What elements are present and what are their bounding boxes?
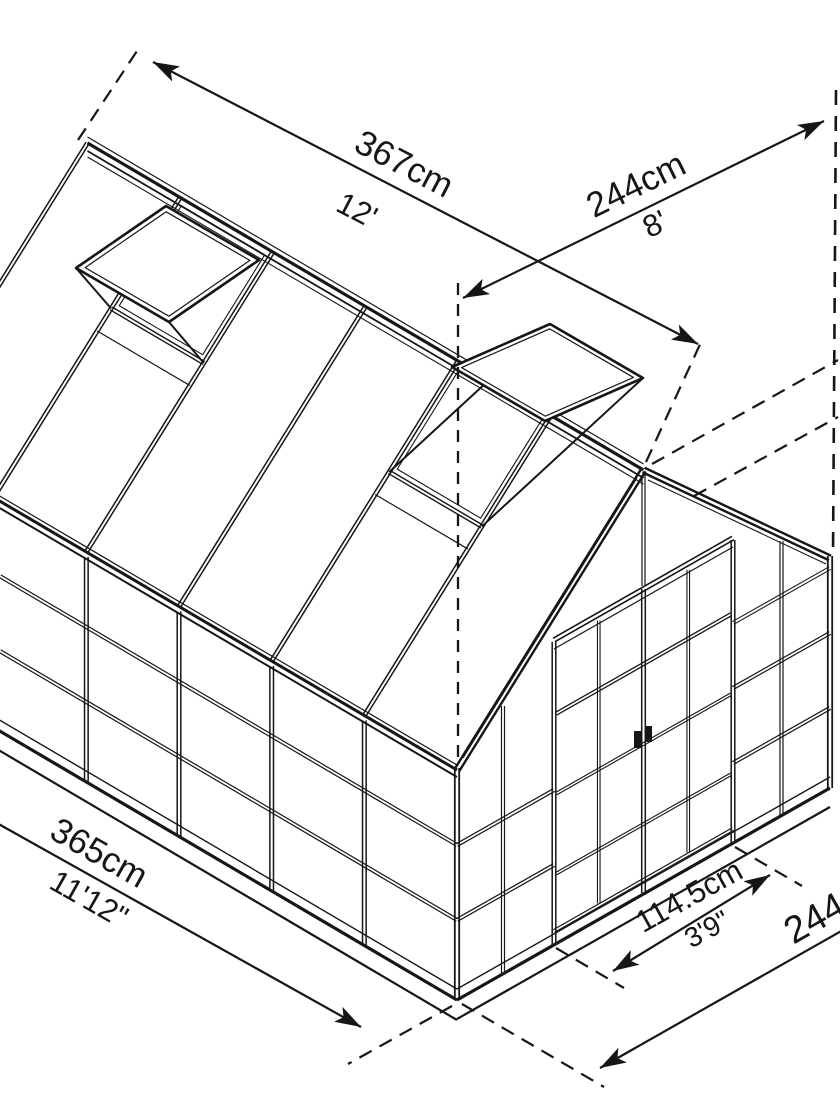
- greenhouse-dimension-diagram: 367cm 12' 244cm 8' 365cm 11'12" 114.5cm …: [0, 0, 840, 1120]
- base-width-cm-label: 244cm: [777, 860, 840, 953]
- greenhouse-drawing: 367cm 12' 244cm 8' 365cm 11'12" 114.5cm …: [0, 0, 840, 1120]
- ridge-length-ft-label: 12': [331, 185, 383, 235]
